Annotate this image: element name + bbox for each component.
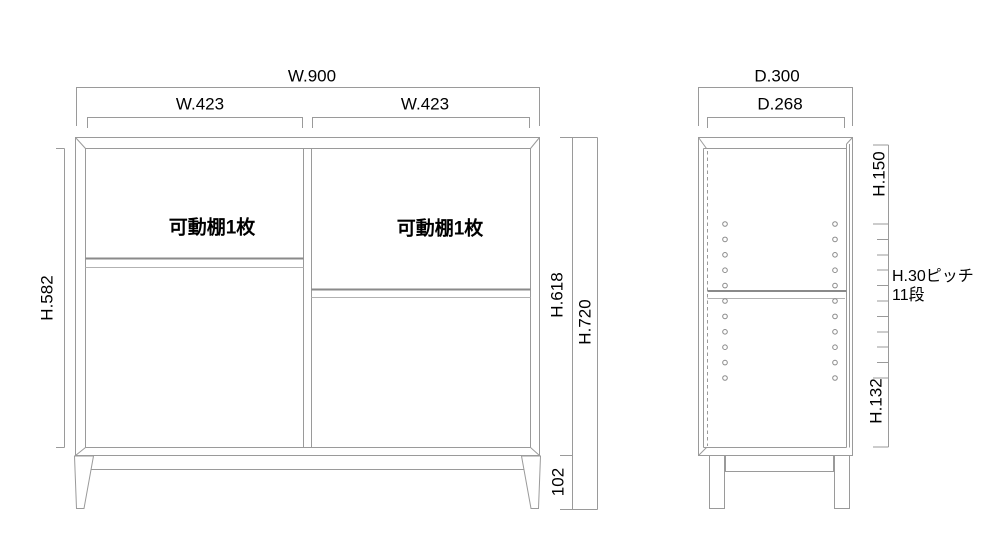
dim-interior-depth-label: D.268 [757,96,802,113]
side-view-body [699,138,853,509]
furniture-dimension-diagram: W.900 W.423 W.423 H.582 H.618 H.720 102 … [0,0,1000,536]
dim-leg-height-label: 102 [550,468,567,496]
front-view-dimension-lines [56,88,598,510]
dim-total-height-label: H.720 [577,299,594,344]
dim-interior-height-label: H.582 [39,275,56,320]
dim-right-bay-width-label: W.423 [401,96,449,113]
pitch-label-line2: 11段 [892,288,925,304]
diagram-linework [0,0,1000,536]
front-view-body [75,138,541,509]
side-shelf [708,291,847,299]
side-view-dimension-lines [699,88,889,448]
shelf-pin-holes [723,222,838,381]
pitch-label-line1: H.30ピッチ [892,269,974,285]
right-bay-shelf-label: 可動棚1枚 [397,220,484,239]
dim-top-offset-label: H.150 [871,151,888,196]
right-shelf [312,290,531,298]
left-shelf [86,259,304,268]
front-base-rail [91,456,525,470]
side-base-rail [726,456,834,472]
dim-total-width-label: W.900 [288,68,336,85]
dim-left-bay-width-label: W.423 [176,96,224,113]
dim-body-height-label: H.618 [549,272,566,317]
left-bay-shelf-label: 可動棚1枚 [169,219,256,238]
dim-bottom-offset-label: H.132 [868,378,885,423]
dim-total-depth-label: D.300 [754,68,799,85]
